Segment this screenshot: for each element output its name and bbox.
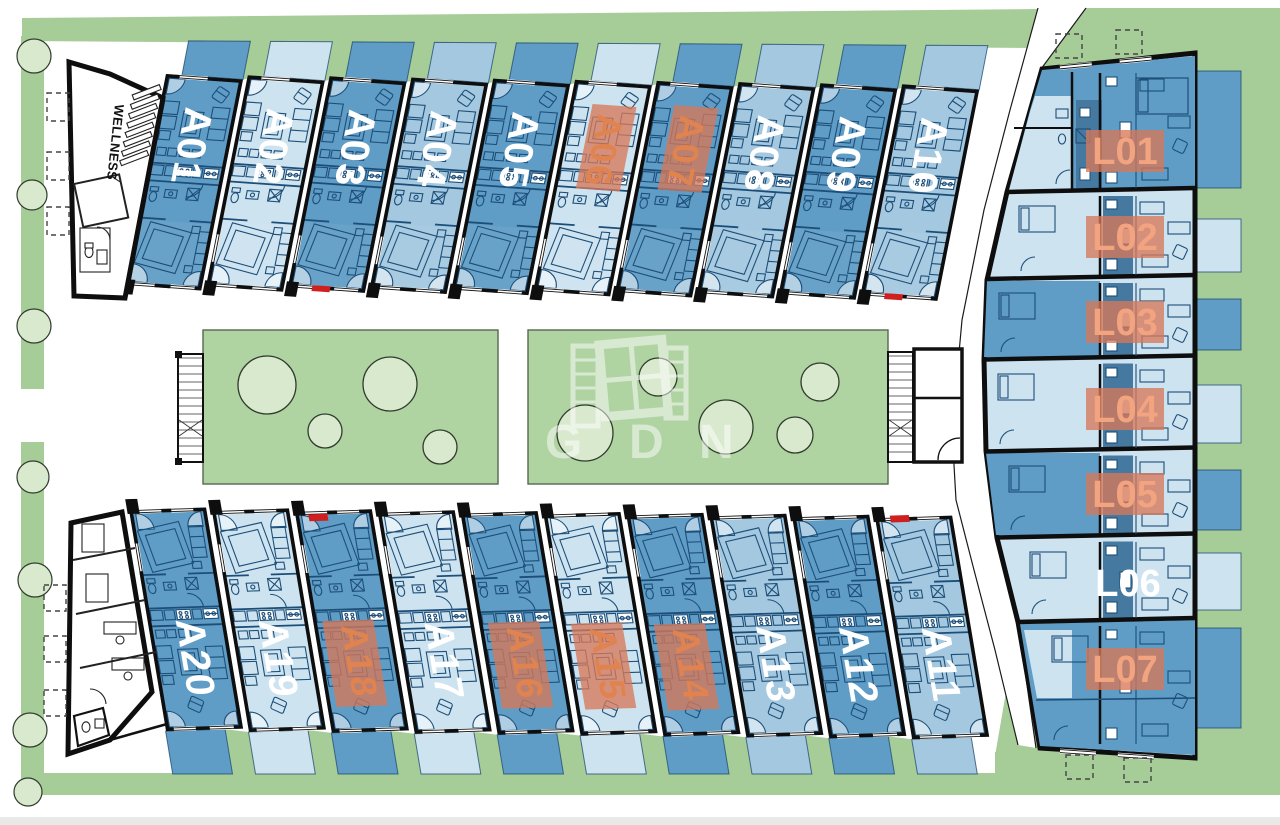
svg-text:L02: L02 xyxy=(1092,217,1157,259)
svg-text:L07: L07 xyxy=(1092,649,1157,691)
svg-text:L03: L03 xyxy=(1092,302,1157,344)
svg-text:L05: L05 xyxy=(1092,474,1157,516)
svg-text:N: N xyxy=(699,416,734,469)
svg-text:L04: L04 xyxy=(1092,389,1157,431)
svg-text:L06: L06 xyxy=(1095,563,1160,605)
svg-text:D: D xyxy=(629,416,664,469)
svg-text:G: G xyxy=(545,416,582,469)
svg-text:L01: L01 xyxy=(1092,131,1157,173)
